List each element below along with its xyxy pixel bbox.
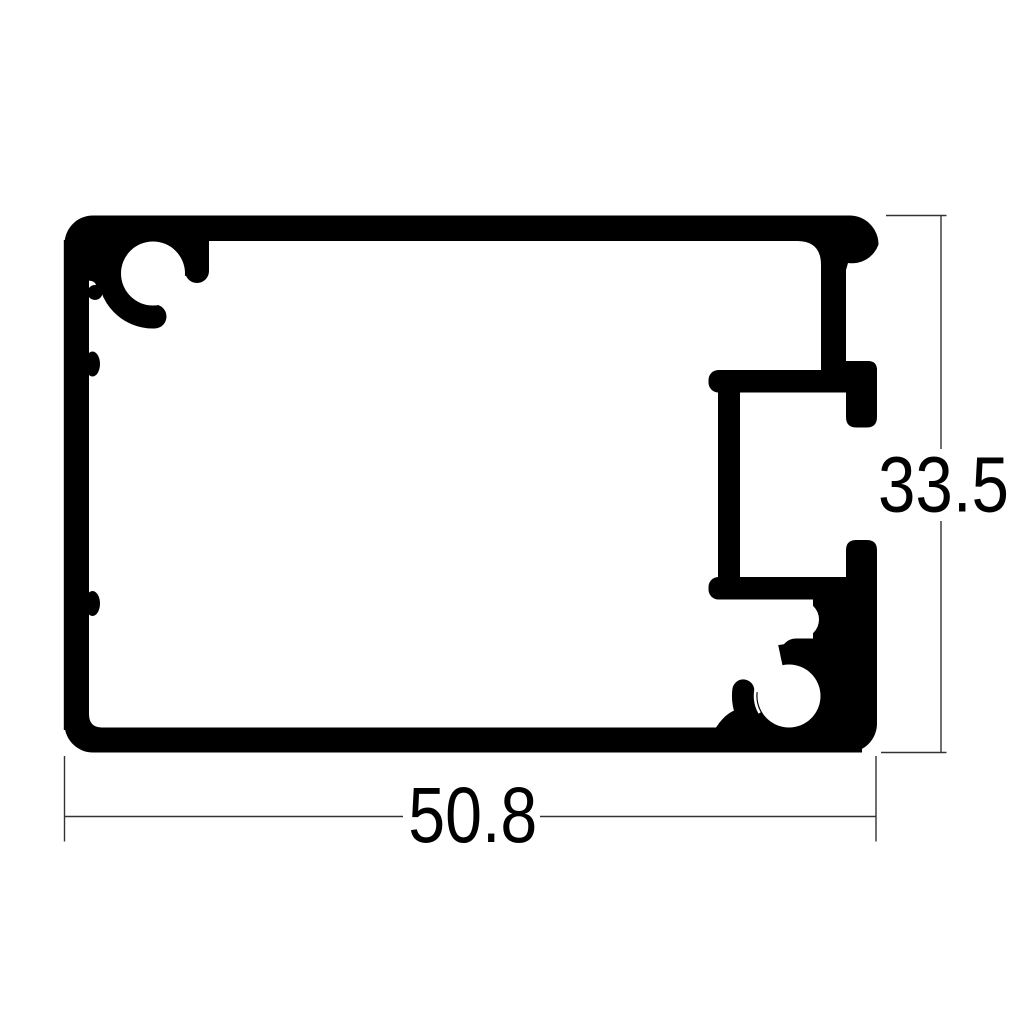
svg-text:50.8: 50.8 bbox=[408, 770, 537, 859]
svg-text:33.5: 33.5 bbox=[878, 440, 1009, 529]
